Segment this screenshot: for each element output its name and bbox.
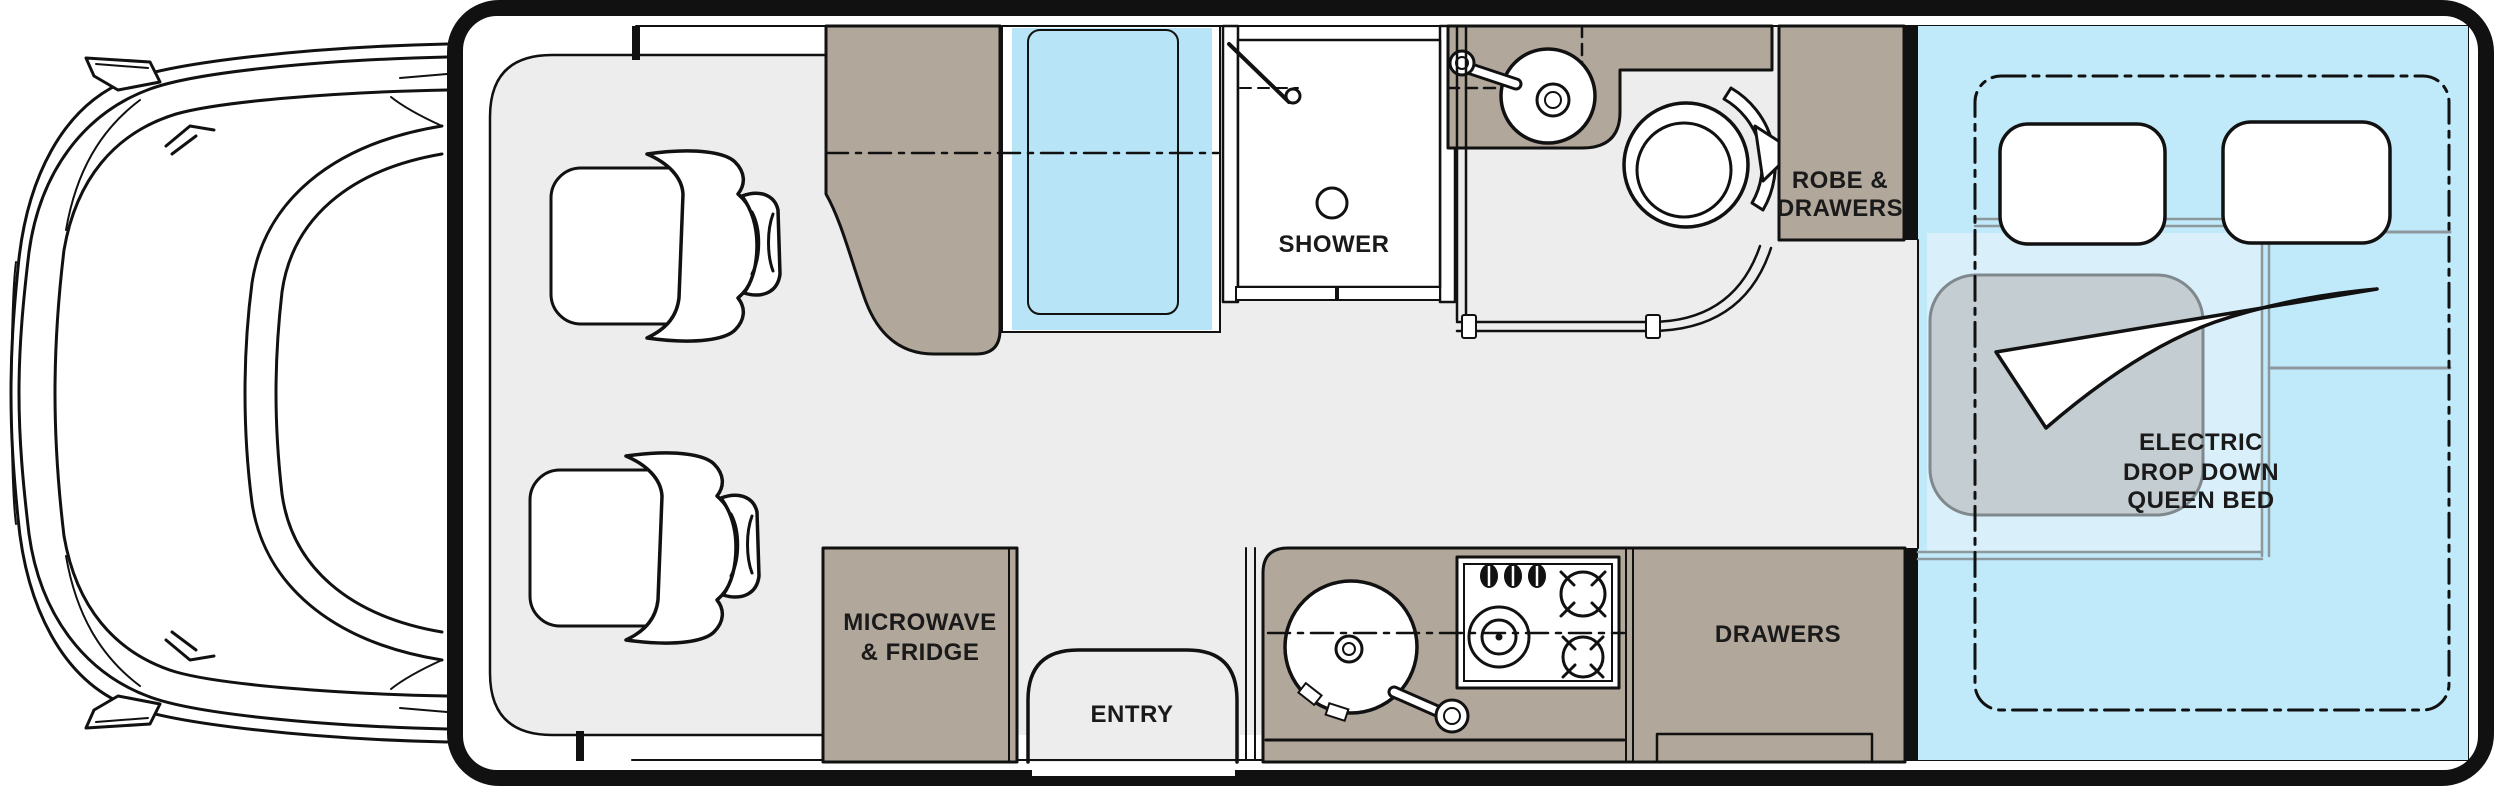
- shower-door-knob-icon: [1286, 89, 1300, 103]
- bed-label: ELECTRIC DROP DOWN QUEEN BED: [2123, 429, 2279, 514]
- bed-label-line2: DROP DOWN: [2123, 459, 2279, 486]
- wiper-icon: [166, 126, 214, 660]
- kitchen-counter: DRAWERS: [1246, 548, 1905, 762]
- drawers-label: DRAWERS: [1715, 621, 1841, 648]
- cab-partition-stub: [632, 26, 640, 60]
- cab-partition-stub: [576, 731, 584, 761]
- cooktop-icon: [1457, 557, 1619, 688]
- robe-label-line2: DRAWERS: [1777, 195, 1903, 222]
- floorplan-svg: ELECTRIC DROP DOWN QUEEN BED SHOWER: [0, 0, 2494, 786]
- bed-label-line3: QUEEN BED: [2127, 487, 2274, 514]
- shower-label: SHOWER: [1279, 231, 1390, 258]
- bed-label-line1: ELECTRIC: [2139, 429, 2263, 456]
- robe-label-line1: ROBE &: [1792, 167, 1888, 194]
- bed-partition-wall: [1904, 26, 1918, 240]
- entry-label: ENTRY: [1091, 701, 1174, 728]
- entry-door-opening: [1032, 764, 1235, 776]
- door-handle-icon: [1646, 315, 1660, 338]
- shower-drain-icon: [1317, 188, 1347, 218]
- pillow-icon: [2000, 124, 2165, 244]
- window-glass: [1002, 26, 1220, 332]
- bed-area: ELECTRIC DROP DOWN QUEEN BED: [1904, 26, 2468, 760]
- pillow-icon: [2223, 122, 2390, 243]
- microwave-label-line2: & FRIDGE: [861, 639, 980, 666]
- microwave-fridge-cabinet: MICROWAVE & FRIDGE: [823, 548, 1017, 762]
- floorplan-canvas: ELECTRIC DROP DOWN QUEEN BED SHOWER: [0, 0, 2494, 786]
- microwave-label-line1: MICROWAVE: [843, 609, 996, 636]
- faucet-icon: [1436, 700, 1468, 732]
- shower-room: SHOWER: [1223, 26, 1455, 302]
- faucet-icon: [1450, 51, 1474, 75]
- vehicle-cab-icon: [11, 44, 447, 742]
- door-handle-icon: [1462, 315, 1476, 338]
- side-mirror-icon: [86, 58, 160, 728]
- robe-cabinet: ROBE & DRAWERS: [1777, 26, 1904, 240]
